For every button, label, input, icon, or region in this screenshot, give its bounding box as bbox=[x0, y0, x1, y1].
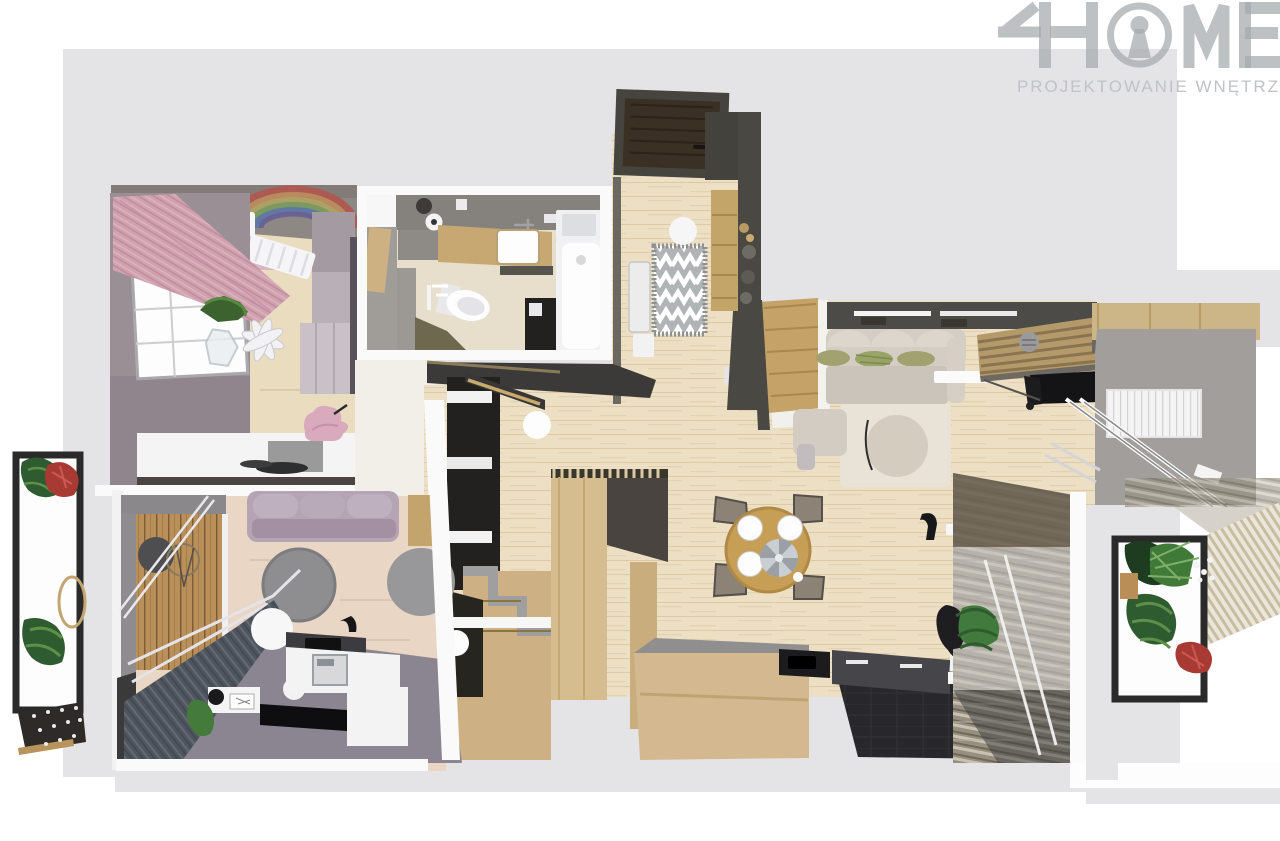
svg-text:PROJEKTOWANIE WNĘTRZ: PROJEKTOWANIE WNĘTRZ bbox=[1017, 77, 1280, 96]
